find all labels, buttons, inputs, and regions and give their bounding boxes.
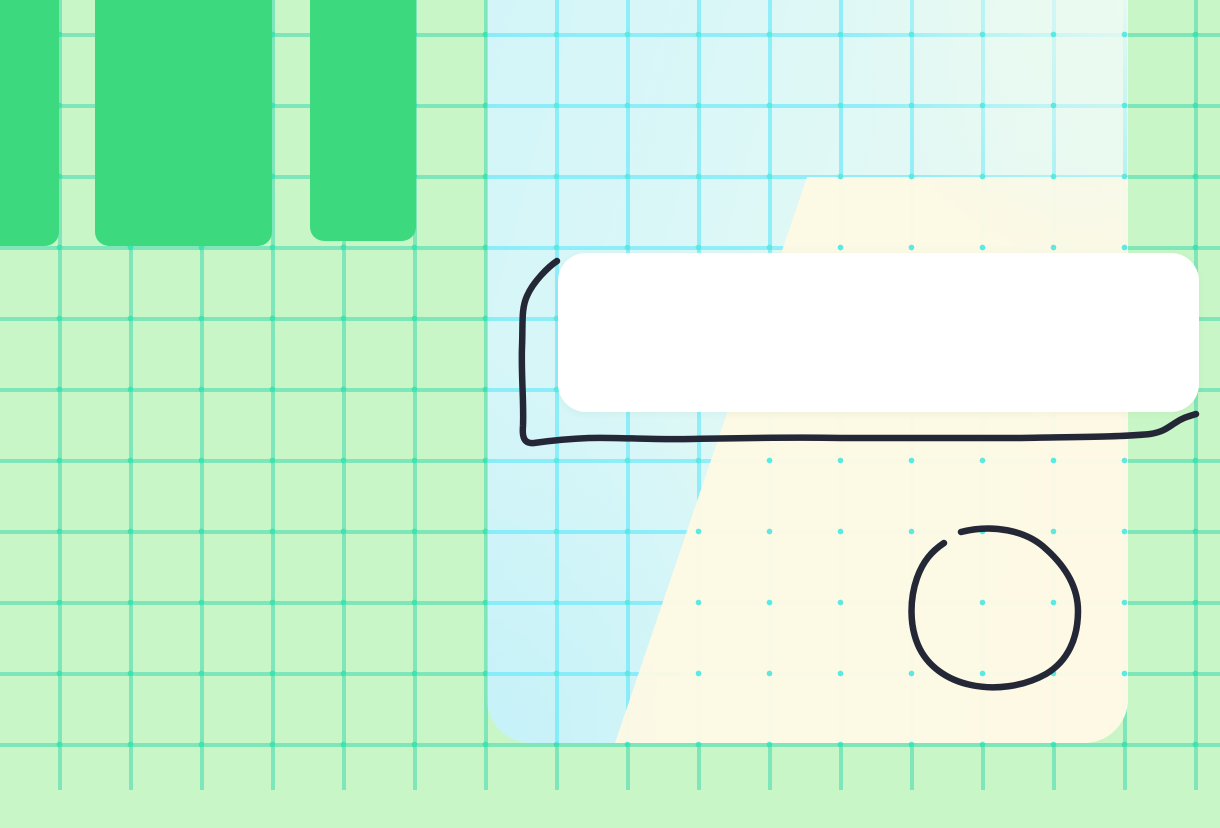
green-column-1[interactable] (0, 0, 59, 246)
green-column-2[interactable] (95, 0, 272, 246)
green-column-3[interactable] (310, 0, 416, 241)
white-card[interactable] (558, 253, 1199, 412)
canvas-stage (0, 0, 1220, 828)
